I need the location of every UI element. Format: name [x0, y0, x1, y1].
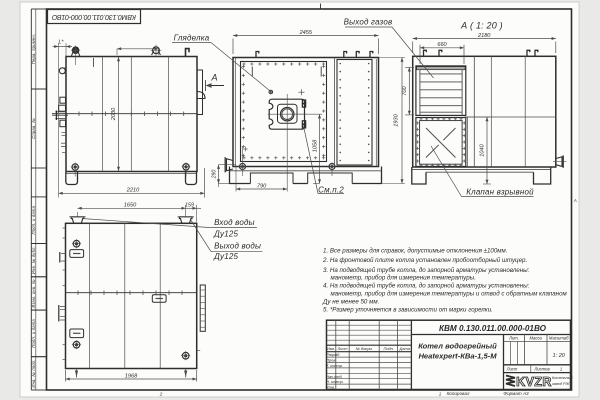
- svg-text:Лит.: Лит.: [508, 336, 519, 341]
- svg-text:Изм.: Изм.: [327, 346, 335, 351]
- svg-text:2. На фронтовой плите котла ус: 2. На фронтовой плите котла установлен п…: [322, 257, 527, 264]
- svg-text:2: 2: [159, 392, 163, 397]
- svg-text:Перв. примен.: Перв. примен.: [31, 34, 36, 64]
- svg-text:660: 660: [437, 42, 447, 48]
- svg-text:700: 700: [402, 86, 408, 96]
- svg-text:Лист: Лист: [506, 367, 518, 372]
- svg-text:1. Все размеры для справок, до: 1. Все размеры для справок, допустимые о…: [323, 247, 508, 254]
- svg-text:1: 20: 1: 20: [552, 353, 565, 359]
- svg-text:А ( 1: 20 ): А ( 1: 20 ): [460, 21, 503, 31]
- svg-text:Масса: Масса: [530, 336, 543, 341]
- svg-text:Нач.отд.: Нач.отд.: [326, 374, 342, 379]
- svg-text:1058: 1058: [312, 139, 318, 152]
- svg-text:Heatexpert-КВа-1,5-М: Heatexpert-КВа-1,5-М: [418, 352, 497, 361]
- svg-text:Справ. №: Справ. №: [31, 118, 36, 139]
- svg-text:А: А: [210, 73, 217, 83]
- svg-text:Ду125: Ду125: [213, 230, 238, 239]
- svg-text:Масштаб: Масштаб: [549, 336, 569, 341]
- svg-text:Утв.: Утв.: [326, 385, 335, 390]
- svg-text:Ду125: Ду125: [213, 252, 238, 261]
- svg-text:2180: 2180: [477, 33, 491, 39]
- svg-text:Т. контр.: Т. контр.: [326, 363, 343, 368]
- svg-text:КВМ0.130.011.00.000-01ВО: КВМ0.130.011.00.000-01ВО: [51, 13, 136, 20]
- svg-text:Инв. № подл.: Инв. № подл.: [31, 359, 36, 387]
- svg-text:Инв. № дубл.: Инв. № дубл.: [31, 246, 36, 274]
- svg-text:L*: L*: [58, 40, 64, 46]
- svg-text:1650: 1650: [124, 202, 137, 208]
- svg-text:Взам. инв. №: Взам. инв. №: [31, 279, 36, 308]
- svg-text:Гляделка: Гляделка: [174, 34, 210, 43]
- svg-text:Подп.: Подп.: [384, 346, 394, 351]
- svg-text:№ докум.: № докум.: [356, 346, 373, 351]
- svg-text:Котельный: Котельный: [552, 376, 574, 380]
- svg-text:Лист: Лист: [336, 346, 348, 351]
- svg-text:Формат А3: Формат А3: [503, 391, 529, 396]
- svg-text:1: 1: [560, 367, 562, 372]
- svg-text:2030: 2030: [111, 107, 117, 121]
- svg-text:2455: 2455: [299, 30, 313, 36]
- svg-text:Подп. и дата: Подп. и дата: [31, 205, 36, 234]
- svg-text:Н. контр.: Н. контр.: [326, 379, 344, 384]
- svg-text:Котел водогрейный: Котел водогрейный: [418, 342, 497, 351]
- svg-text:А: А: [573, 198, 577, 203]
- svg-text:Ду не менее 50 мм.: Ду не менее 50 мм.: [322, 299, 379, 306]
- svg-text:Дата: Дата: [399, 346, 411, 351]
- svg-text:5. *Размер уточняется в зависи: 5. *Размер уточняется в зависимости от м…: [323, 307, 493, 314]
- svg-text:Разраб.: Разраб.: [326, 352, 340, 357]
- svg-text:Выход газов: Выход газов: [344, 18, 393, 27]
- svg-text:Выход воды: Выход воды: [214, 241, 261, 250]
- svg-text:Вход воды: Вход воды: [214, 218, 255, 227]
- svg-text:1968: 1968: [125, 373, 138, 379]
- svg-text:4. На подводящей трубе котла,: 4. На подводящей трубе котла, до запорно…: [323, 283, 530, 290]
- svg-text:1040: 1040: [479, 143, 485, 156]
- svg-text:Клапан взрывной: Клапан взрывной: [466, 188, 534, 197]
- svg-text:790: 790: [257, 184, 267, 190]
- svg-text:1930: 1930: [394, 113, 400, 126]
- svg-text:Пров.: Пров.: [326, 358, 336, 363]
- svg-text:2210: 2210: [126, 188, 140, 194]
- svg-text:290: 290: [211, 170, 217, 180]
- svg-text:завод РЭП: завод РЭП: [551, 382, 571, 386]
- svg-text:Листов: Листов: [533, 367, 550, 372]
- svg-text:Подп. и дата: Подп. и дата: [31, 319, 36, 348]
- svg-text:манометр, прибор для измерения: манометр, прибор для измерения температу…: [331, 291, 568, 298]
- svg-text:3. На подводящей трубе котла,: 3. На подводящей трубе котла, до запорно…: [323, 267, 530, 274]
- svg-text:Копировал: Копировал: [447, 391, 470, 396]
- svg-text:КВМ 0.130.011.00.000-01ВО: КВМ 0.130.011.00.000-01ВО: [439, 324, 547, 333]
- svg-text:KVZR: KVZR: [516, 375, 552, 389]
- svg-text:159: 159: [185, 202, 194, 208]
- svg-text:манометр, прибор для измерения: манометр, прибор для измерения температу…: [331, 275, 476, 282]
